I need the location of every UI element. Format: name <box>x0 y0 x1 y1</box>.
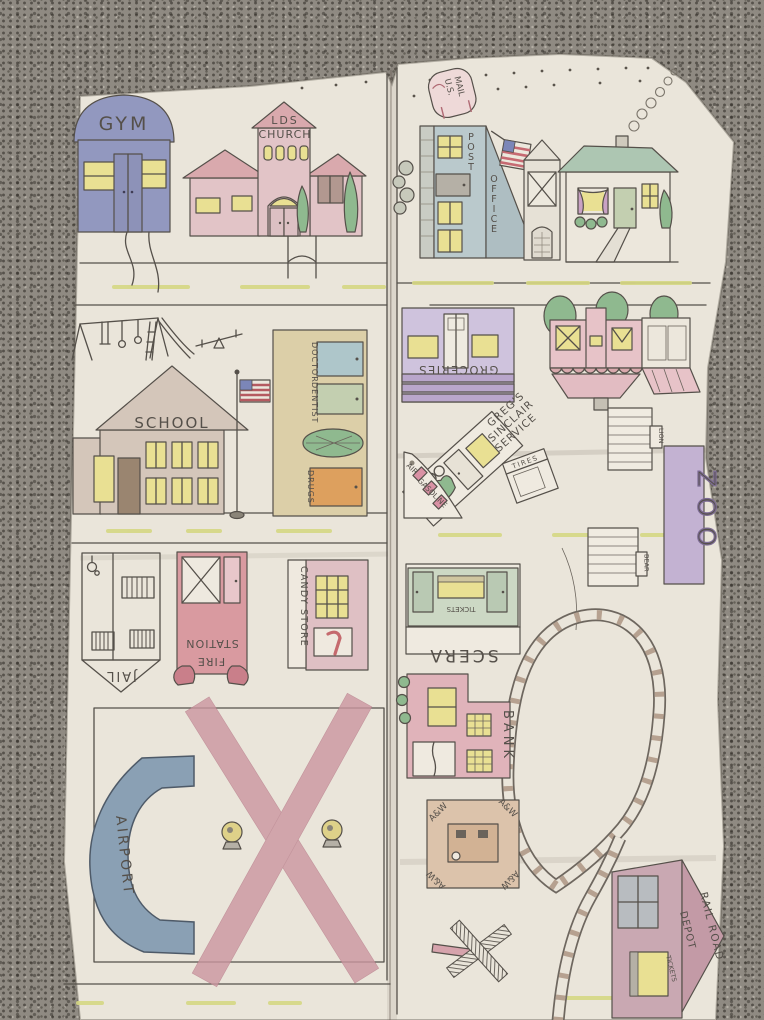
post-office-label-line2: OFFICE <box>490 174 497 235</box>
bear-label: BEAR <box>643 554 651 572</box>
brick-chimney <box>420 126 434 258</box>
center-seam <box>390 70 391 1020</box>
fire-station-label-line1: FIRE <box>197 655 225 668</box>
jail-label: JAIL <box>105 668 138 683</box>
groceries-window <box>408 336 438 358</box>
school-window <box>94 456 114 502</box>
scera-label: SCERA <box>427 645 498 665</box>
school-label: SCHOOL <box>134 414 209 432</box>
school-door <box>118 458 140 514</box>
fire-station-label-line2: STATION <box>185 637 238 650</box>
fire-station-building: STATION FIRE <box>174 552 248 685</box>
candy-store-window <box>316 576 348 618</box>
bank-window-grid <box>467 714 491 736</box>
runway-beacon <box>222 822 242 849</box>
doctor-label: DOCTOR <box>310 342 319 383</box>
barn-tower <box>524 140 560 260</box>
bank-label: BANK <box>500 710 515 762</box>
candy-store-label: CANDY STORE <box>298 566 309 647</box>
bank-window-grid <box>467 750 492 772</box>
groceries-store: GROCERIES <box>402 308 514 402</box>
clinic-strip-mall: DOCTOR DENTIST DRUGS <box>273 330 367 516</box>
shrubs <box>575 217 607 229</box>
fire-boot <box>227 666 248 685</box>
church-label-line1: LDS <box>271 114 299 127</box>
side-door <box>224 557 240 603</box>
tickets-label: TICKETS <box>446 605 477 613</box>
post-office-label-line1: POST <box>467 132 475 173</box>
groceries-window <box>472 335 498 357</box>
candy-store: CANDY STORE <box>288 560 368 670</box>
drugs-label: DRUGS <box>306 470 315 504</box>
aw-root-beer-stand: A&W A&W A&W A&W <box>425 797 521 891</box>
dentist-label: DENTIST <box>310 382 319 423</box>
groceries-label: GROCERIES <box>418 363 499 377</box>
jail-window-barred <box>130 630 154 648</box>
lion-label: LION <box>657 428 665 444</box>
runway-beacon <box>322 820 342 847</box>
church-window <box>232 196 252 211</box>
drugs-door <box>310 468 362 506</box>
zoo-label: ZOO <box>692 470 721 556</box>
us-flag <box>240 380 270 402</box>
gym-label: GYM <box>99 113 150 135</box>
fire-boot <box>174 666 195 685</box>
scera-theater: TICKETS SCERA <box>406 564 520 665</box>
church-window <box>196 198 220 213</box>
pink-house-inverted <box>544 292 700 410</box>
fabric-town-map: GYM LDS CHURCH U.S. MAIL <box>0 0 764 1020</box>
church-label-line2: CHURCH <box>258 128 311 141</box>
carpet-background: GYM LDS CHURCH U.S. MAIL <box>0 0 764 1020</box>
